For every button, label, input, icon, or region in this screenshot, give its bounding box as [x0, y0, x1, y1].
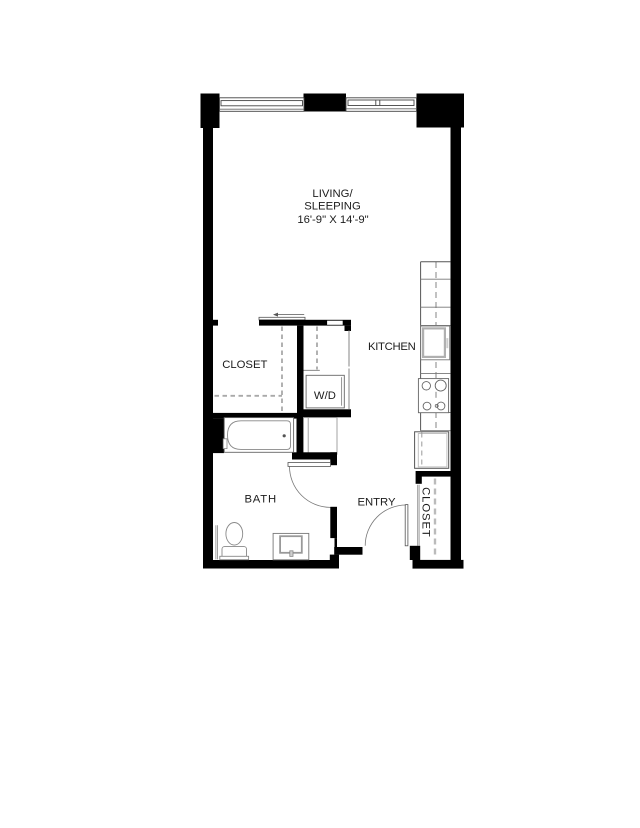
svg-text:KITCHEN: KITCHEN [368, 341, 416, 353]
svg-text:16'-9" X 14'-9": 16'-9" X 14'-9" [297, 214, 368, 226]
svg-text:SLEEPING: SLEEPING [304, 201, 361, 213]
svg-text:CLOSET: CLOSET [222, 359, 267, 371]
svg-text:ENTRY: ENTRY [357, 497, 396, 509]
svg-text:LIVING/: LIVING/ [312, 188, 353, 200]
svg-text:BATH: BATH [244, 493, 277, 505]
svg-text:CLOSET: CLOSET [419, 487, 431, 538]
svg-text:W/D: W/D [314, 390, 336, 402]
